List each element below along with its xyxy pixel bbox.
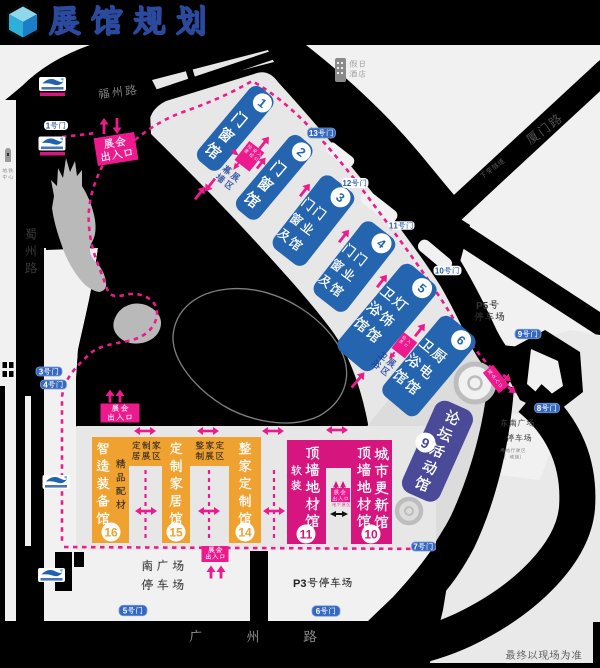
svg-text:P5: P5 (476, 301, 489, 312)
svg-text:8: 8 (537, 404, 542, 413)
svg-text:16: 16 (104, 526, 118, 540)
svg-text:1: 1 (393, 221, 398, 230)
svg-text:3: 3 (313, 129, 318, 138)
svg-text:3: 3 (39, 367, 44, 376)
svg-text:11: 11 (300, 528, 313, 542)
svg-text:14: 14 (238, 526, 252, 540)
svg-text:6: 6 (316, 607, 321, 616)
svg-text:P3: P3 (293, 578, 306, 590)
svg-text:5: 5 (123, 606, 128, 615)
svg-text:7: 7 (413, 542, 418, 551)
svg-text:15: 15 (169, 526, 183, 540)
svg-text:4: 4 (43, 380, 48, 389)
svg-text:0: 0 (439, 266, 444, 275)
svg-text:1: 1 (46, 121, 51, 130)
svg-text:10: 10 (364, 528, 378, 542)
svg-text:2: 2 (347, 179, 352, 188)
svg-text:9: 9 (518, 330, 523, 339)
